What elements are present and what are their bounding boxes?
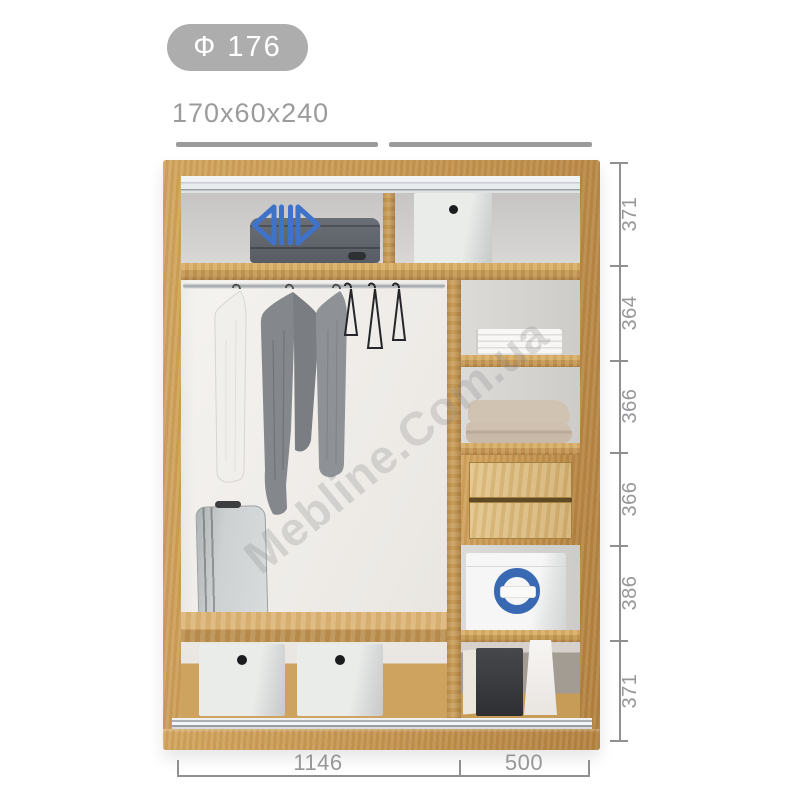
back-panel	[463, 650, 476, 715]
dim-label-vertical: 364	[620, 283, 640, 343]
folded-blanket-bottom	[466, 422, 572, 443]
door-width-bar-right	[389, 142, 592, 147]
dimension-tick	[610, 640, 628, 642]
door-track	[181, 176, 580, 194]
right-column-divider	[447, 280, 461, 718]
box-handle-strap	[500, 586, 536, 598]
dimension-tick	[610, 740, 628, 742]
ring-storage-box	[466, 553, 566, 631]
door-width-bar-left	[176, 142, 378, 147]
jacket-gray	[261, 285, 319, 515]
dimension-tick	[459, 760, 461, 777]
drawer-1[interactable]	[469, 462, 572, 498]
dimension-tick	[610, 452, 628, 454]
bench-shelf	[181, 612, 447, 642]
suitcase-standing	[195, 505, 268, 629]
top-section-divider	[383, 193, 395, 263]
shirt-gray	[316, 285, 347, 477]
gift-bag	[524, 640, 557, 715]
dim-label-horizontal: 500	[464, 750, 584, 776]
dimension-tick	[588, 760, 590, 777]
storage-box-top	[414, 193, 492, 263]
box-hole	[237, 655, 247, 665]
model-badge-label: Ф 176	[193, 31, 282, 64]
shelf-linens	[461, 355, 580, 367]
dimension-tick	[610, 360, 628, 362]
size-label: 170x60x240	[172, 98, 329, 129]
dim-label-vertical: 366	[620, 469, 640, 529]
dark-box	[476, 648, 523, 716]
box-hole	[449, 205, 458, 214]
hanging-rod	[183, 283, 445, 289]
shirt-white	[215, 285, 246, 482]
bottom-door-rail	[172, 718, 592, 729]
ring-box-cell	[461, 545, 580, 630]
drawer-2[interactable]	[469, 502, 572, 539]
suitcase-handle	[215, 501, 241, 508]
dimension-tick	[610, 265, 628, 267]
model-badge: Ф 176	[167, 24, 308, 71]
folded-linens	[476, 329, 562, 355]
dimension-tick	[610, 545, 628, 547]
drawer-unit	[461, 455, 580, 545]
empty-hanger	[393, 284, 405, 340]
wardrobe-frame	[163, 160, 600, 750]
bottom-right-cell	[461, 642, 580, 718]
folded-blanket-top	[468, 400, 570, 424]
box-hole	[335, 655, 345, 665]
storage-box-bottom-2	[297, 644, 383, 716]
empty-hanger	[368, 284, 382, 348]
shelf-blanket	[461, 443, 580, 455]
dim-label-horizontal: 1146	[258, 750, 378, 776]
storage-box-bottom-1	[199, 644, 285, 716]
dim-label-vertical: 371	[620, 184, 640, 244]
shelf-top	[181, 263, 580, 280]
dim-label-vertical: 386	[620, 563, 640, 623]
shelf-ring-box	[461, 630, 580, 642]
suitcase-top-handle	[348, 252, 366, 260]
empty-hanger	[345, 284, 357, 335]
base-plinth	[163, 729, 600, 750]
dim-label-vertical: 366	[620, 376, 640, 436]
sliding-doors-icon	[250, 203, 322, 247]
blanket-cell	[461, 367, 580, 443]
dimension-tick	[610, 162, 628, 164]
box-lid-line	[466, 566, 566, 567]
dim-label-vertical: 371	[620, 661, 640, 721]
product-diagram: Ф 176 170x60x240	[0, 0, 800, 800]
linens-cell	[461, 280, 580, 355]
dimension-tick	[177, 760, 179, 777]
